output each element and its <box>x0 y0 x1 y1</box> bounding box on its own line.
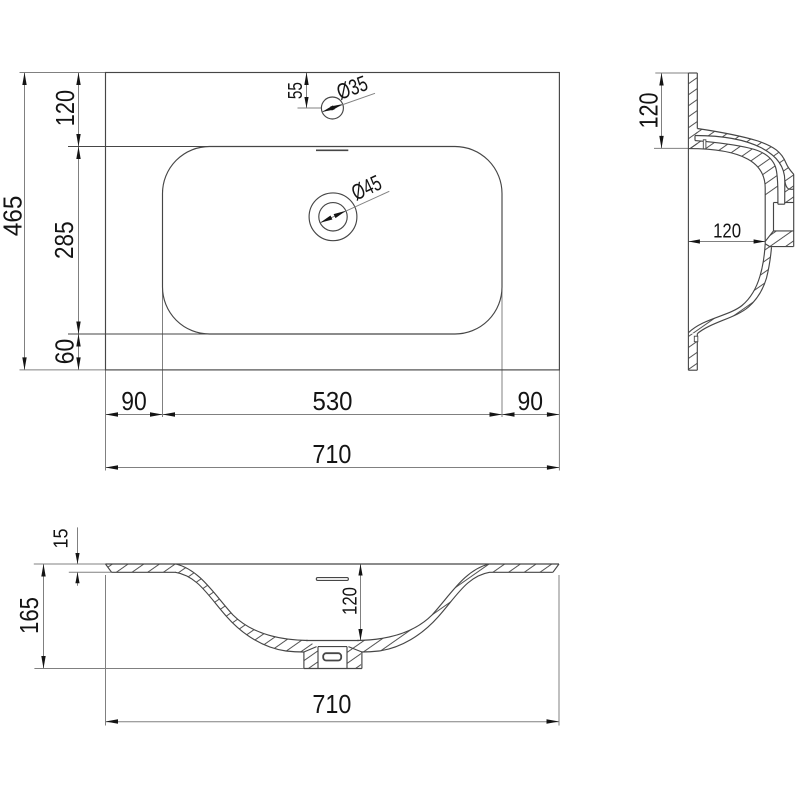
svg-text:710: 710 <box>312 689 351 719</box>
svg-text:530: 530 <box>313 386 353 416</box>
svg-text:285: 285 <box>49 221 79 259</box>
svg-text:465: 465 <box>0 196 28 237</box>
svg-text:120: 120 <box>339 587 361 615</box>
svg-text:15: 15 <box>51 529 73 549</box>
svg-text:165: 165 <box>14 597 44 634</box>
svg-text:90: 90 <box>517 386 543 416</box>
svg-text:120: 120 <box>633 92 663 128</box>
svg-text:710: 710 <box>312 439 351 469</box>
svg-text:90: 90 <box>121 386 147 416</box>
svg-text:60: 60 <box>49 339 79 365</box>
svg-text:120: 120 <box>50 90 80 126</box>
svg-text:120: 120 <box>713 221 741 243</box>
svg-text:55: 55 <box>285 82 307 99</box>
